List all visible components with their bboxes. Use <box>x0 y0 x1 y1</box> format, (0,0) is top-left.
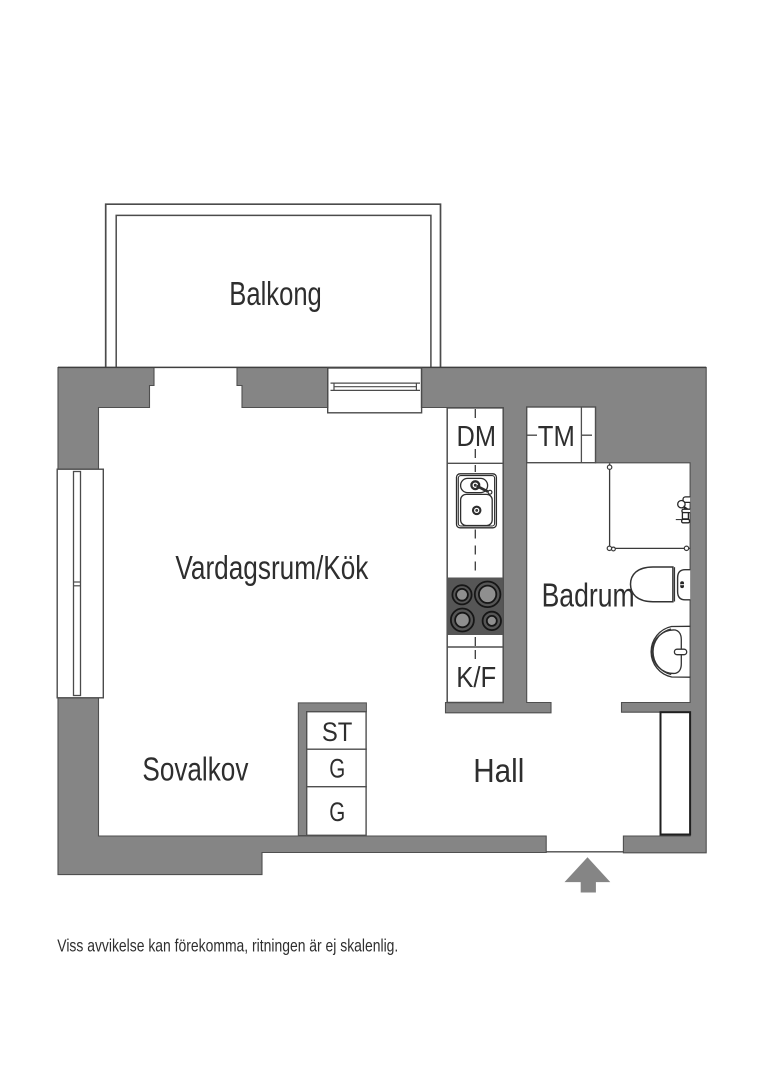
svg-text:Vardagsrum/Kök: Vardagsrum/Kök <box>175 550 368 587</box>
svg-text:Hall: Hall <box>473 753 524 790</box>
svg-text:Badrum: Badrum <box>542 578 635 615</box>
svg-text:Sovalkov: Sovalkov <box>142 752 248 789</box>
svg-text:G: G <box>329 754 345 784</box>
svg-text:DM: DM <box>457 421 497 453</box>
svg-text:G: G <box>329 797 345 827</box>
svg-text:Balkong: Balkong <box>229 276 321 313</box>
svg-text:K/F: K/F <box>456 662 496 694</box>
svg-text:ST: ST <box>322 717 353 747</box>
svg-text:TM: TM <box>538 421 575 453</box>
svg-text:Viss avvikelse kan förekomma,: Viss avvikelse kan förekomma, ritningen … <box>57 935 398 955</box>
